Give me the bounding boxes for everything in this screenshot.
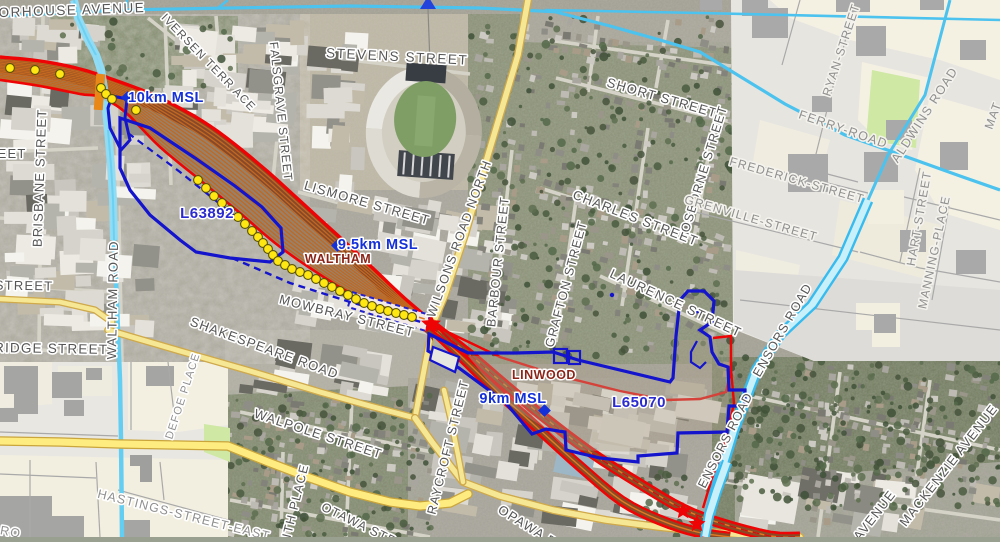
svg-text:STREET: STREET bbox=[0, 146, 26, 161]
svg-text:RIDGE STREET: RIDGE STREET bbox=[0, 340, 108, 357]
svg-text:10km MSL: 10km MSL bbox=[128, 90, 204, 106]
svg-text:9.5km MSL: 9.5km MSL bbox=[338, 237, 418, 253]
svg-text:9km MSL: 9km MSL bbox=[479, 391, 546, 407]
svg-text:WALTHAM: WALTHAM bbox=[305, 252, 371, 266]
svg-text:L65070: L65070 bbox=[612, 394, 666, 411]
svg-text:STREET: STREET bbox=[0, 277, 53, 293]
svg-text:WALTHAM ROAD: WALTHAM ROAD bbox=[104, 240, 121, 359]
svg-text:L63892: L63892 bbox=[180, 205, 234, 222]
svg-text:LINWOOD: LINWOOD bbox=[512, 368, 576, 382]
